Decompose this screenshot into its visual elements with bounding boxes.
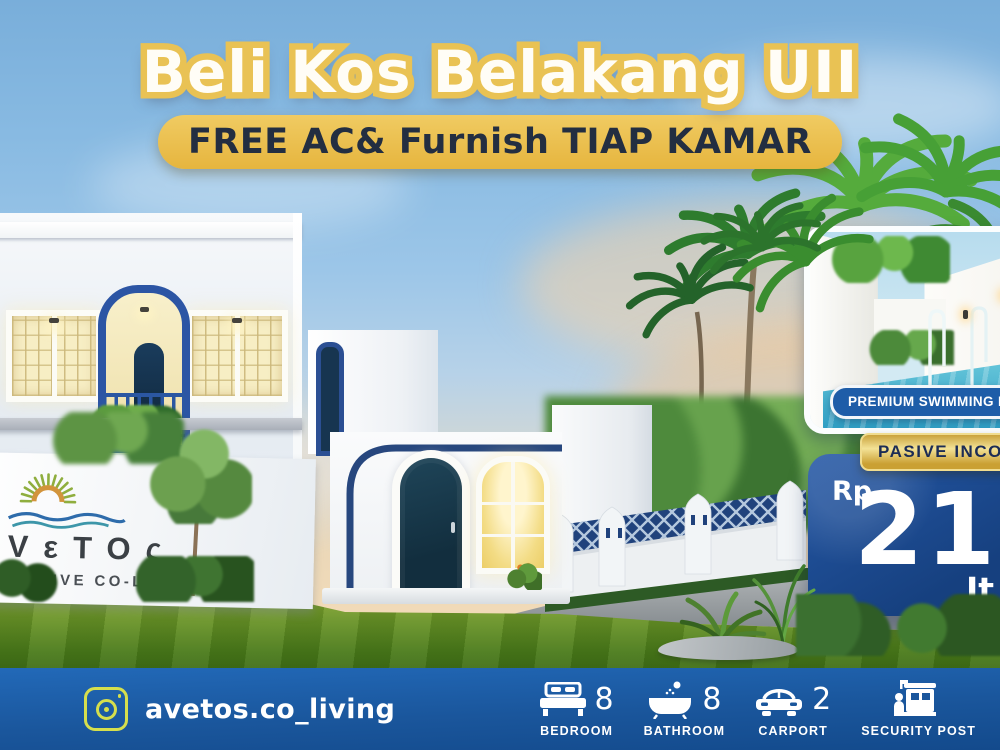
car-icon xyxy=(755,683,803,717)
wall-lamp xyxy=(963,310,968,319)
upstairs-window xyxy=(186,310,288,402)
footer-bar: avetos.co_living 8 BEDROOM xyxy=(0,668,1000,750)
entry-door xyxy=(400,458,462,594)
window-mullion xyxy=(52,316,57,396)
side-building-wall xyxy=(552,405,652,577)
instagram-handle: avetos.co_living xyxy=(145,694,395,725)
headline: Beli Kos Belakang UII Beli Kos Belakang … xyxy=(142,40,859,105)
window-mullion xyxy=(235,316,240,396)
door-handle xyxy=(451,522,455,533)
window-muntin xyxy=(482,502,544,505)
garden-tree xyxy=(146,424,252,524)
headline-text: Beli Kos Belakang UII xyxy=(142,38,859,106)
instagram-flash-dot xyxy=(118,694,122,698)
window-mullion xyxy=(511,462,515,568)
property-ad-poster: ΛVεTOς EXCLUSIVE CO-LIVING✦ PREMIUM SWIM… xyxy=(0,0,1000,750)
price-card: Rp 216 Jt xyxy=(808,454,1000,616)
shrubs xyxy=(0,554,60,602)
guard-post-icon xyxy=(892,680,936,720)
feature-label: BATHROOM xyxy=(644,724,725,738)
foreground-plants xyxy=(796,594,1000,656)
shrubs xyxy=(136,556,254,602)
instagram-icon xyxy=(84,687,128,731)
bathtub-icon xyxy=(647,681,693,719)
feature-carport: 2 CARPORT xyxy=(755,680,831,738)
pool-badge: PREMIUM SWIMMING POOL xyxy=(830,385,1000,419)
feature-count: 8 xyxy=(702,685,721,715)
instagram-lens-dot xyxy=(104,707,109,712)
feature-bedroom: 8 BEDROOM xyxy=(540,680,614,738)
bed-icon xyxy=(540,682,586,718)
garden-stone xyxy=(658,636,798,660)
flower-pot-plant xyxy=(506,562,542,590)
feature-label: CARPORT xyxy=(758,724,828,738)
price-amount: 216 xyxy=(854,480,1000,580)
pool-palms xyxy=(827,236,950,283)
sun-waves-logo-icon xyxy=(13,459,84,510)
feature-security-post: SECURITY POST xyxy=(861,680,976,738)
window-lamp xyxy=(49,318,59,323)
feature-count: 2 xyxy=(812,685,831,715)
feature-list: 8 BEDROOM 8 BATHROOM xyxy=(540,680,976,738)
balcony-ceiling-lamp xyxy=(140,307,149,312)
feature-count: 8 xyxy=(595,685,614,715)
door-frame xyxy=(392,450,470,594)
feature-label: BEDROOM xyxy=(540,724,613,738)
feature-bathroom: 8 BATHROOM xyxy=(644,680,725,738)
porch-step xyxy=(322,588,570,604)
feature-label: SECURITY POST xyxy=(861,724,976,738)
upstairs-window xyxy=(6,310,102,402)
roof-cornice xyxy=(0,222,302,238)
headline-block: Beli Kos Belakang UII Beli Kos Belakang … xyxy=(0,40,1000,169)
window-lamp xyxy=(232,318,242,323)
entry-arch-window xyxy=(476,456,550,574)
promo-pill: FREE AC& Furnish TIAP KAMAR xyxy=(158,115,842,169)
passive-income-badge: PASIVE INCOME xyxy=(860,433,1000,471)
window-muntin xyxy=(482,534,544,537)
